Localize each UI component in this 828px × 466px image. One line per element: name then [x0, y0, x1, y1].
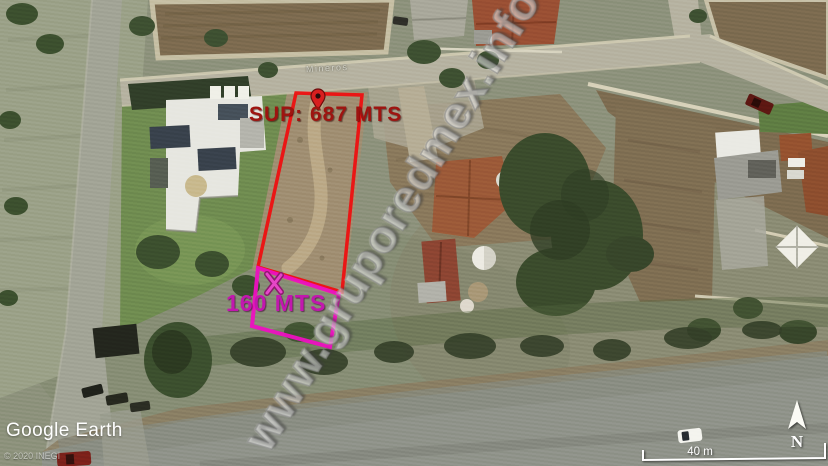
google-earth-satellite-view: N 40 m Mineros SUP: 687 MTS 160 MTS www.… — [0, 0, 828, 466]
satellite-scene — [0, 0, 828, 466]
red-car — [57, 451, 92, 466]
